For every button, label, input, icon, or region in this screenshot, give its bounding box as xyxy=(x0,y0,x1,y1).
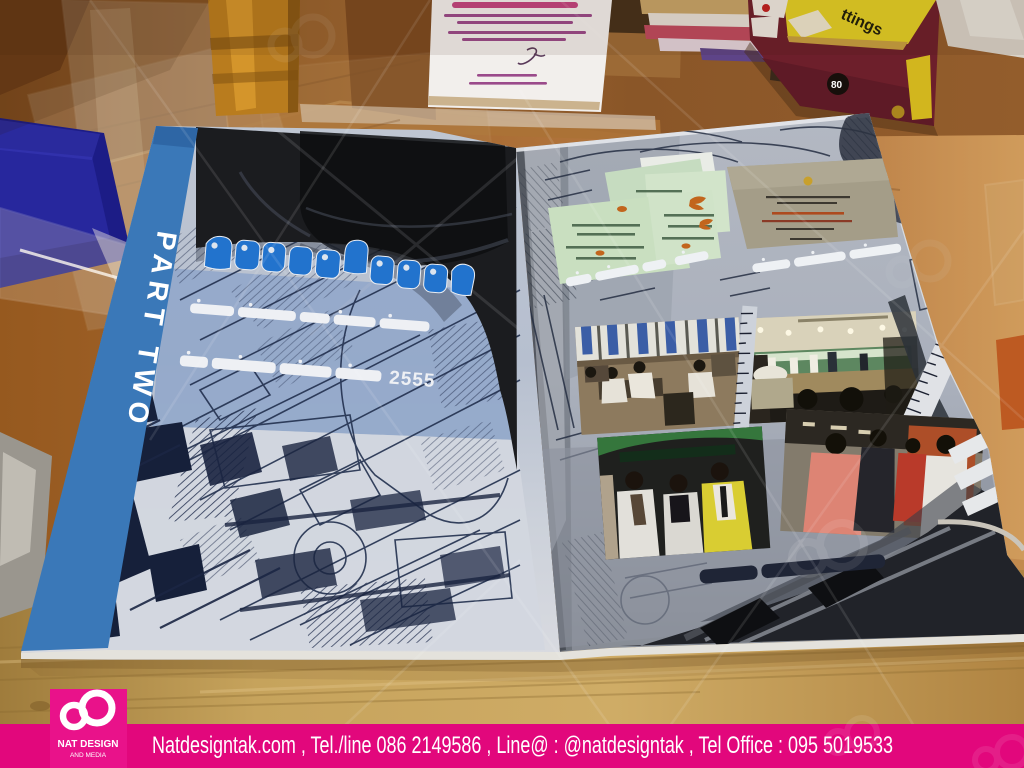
svg-text:Natdesigntak.com , Tel./line 0: Natdesigntak.com , Tel./line 086 2149586… xyxy=(152,732,893,759)
svg-text:80: 80 xyxy=(831,80,843,91)
svg-text:AND MEDIA: AND MEDIA xyxy=(70,752,107,759)
svg-text:2555: 2555 xyxy=(388,368,436,393)
svg-text:NAT DESIGN: NAT DESIGN xyxy=(58,739,119,750)
